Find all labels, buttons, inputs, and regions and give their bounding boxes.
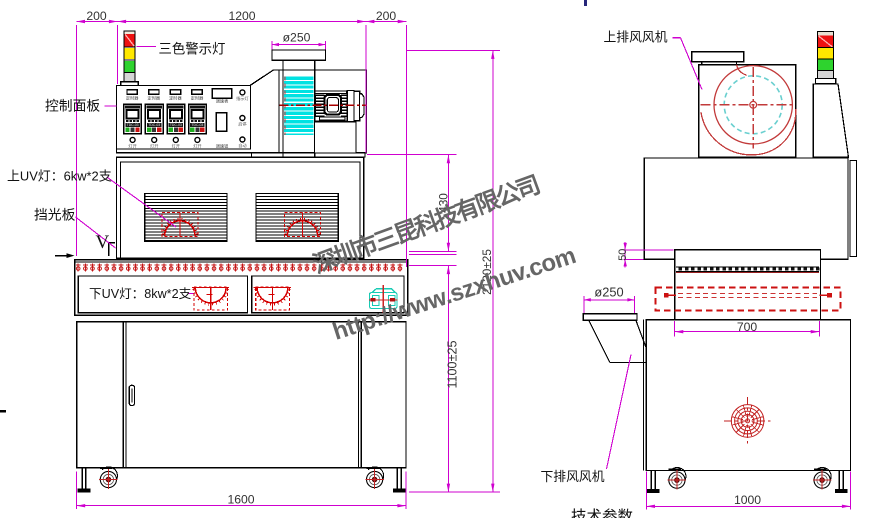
- svg-text:50: 50: [617, 249, 629, 261]
- svg-text:ø250: ø250: [283, 31, 311, 45]
- svg-text:1000: 1000: [734, 493, 761, 507]
- svg-text:200: 200: [86, 9, 107, 23]
- svg-text:TDC-03: TDC-03: [127, 123, 139, 127]
- svg-text:定时器: 定时器: [169, 94, 182, 101]
- svg-text:TDC-03: TDC-03: [191, 123, 203, 127]
- svg-text:调速表: 调速表: [216, 98, 229, 105]
- svg-text:挡光板: 挡光板: [34, 208, 76, 223]
- svg-text:灯开: 灯开: [193, 142, 201, 149]
- svg-text:1600: 1600: [227, 493, 254, 507]
- svg-text:自动: 自动: [238, 142, 246, 149]
- svg-text:上UV灯：6kw*2支: 上UV灯：6kw*2支: [7, 169, 112, 184]
- svg-text:ø250: ø250: [594, 285, 623, 300]
- svg-text:V: V: [96, 232, 110, 253]
- svg-text:下排风风机: 下排风风机: [541, 469, 605, 484]
- svg-text:上排风风机: 上排风风机: [604, 30, 668, 45]
- svg-text:下UV灯：8kw*2支: 下UV灯：8kw*2支: [89, 287, 192, 301]
- svg-text:灯开: 灯开: [150, 142, 158, 149]
- svg-text:控制面板: 控制面板: [45, 99, 100, 114]
- svg-text:灯开: 灯开: [128, 142, 136, 149]
- svg-text:TDC-03: TDC-03: [148, 123, 160, 127]
- svg-text:灯开: 灯开: [172, 142, 180, 149]
- svg-text:1200: 1200: [228, 9, 255, 23]
- svg-text:三色警示灯: 三色警示灯: [159, 41, 226, 57]
- svg-text:1100±25: 1100±25: [446, 340, 460, 388]
- svg-text:定时器: 定时器: [148, 94, 161, 101]
- svg-text:200: 200: [376, 9, 397, 23]
- svg-text:指示灯: 指示灯: [236, 95, 249, 102]
- svg-text:定时器: 定时器: [126, 94, 139, 101]
- svg-text:调速钮: 调速钮: [216, 142, 229, 149]
- svg-text:技术参数: 技术参数: [571, 508, 634, 519]
- svg-text:定时器: 定时器: [191, 94, 204, 101]
- svg-text:700: 700: [737, 320, 758, 334]
- svg-text:启停: 启停: [238, 121, 246, 128]
- svg-text:TDC-03: TDC-03: [170, 123, 182, 127]
